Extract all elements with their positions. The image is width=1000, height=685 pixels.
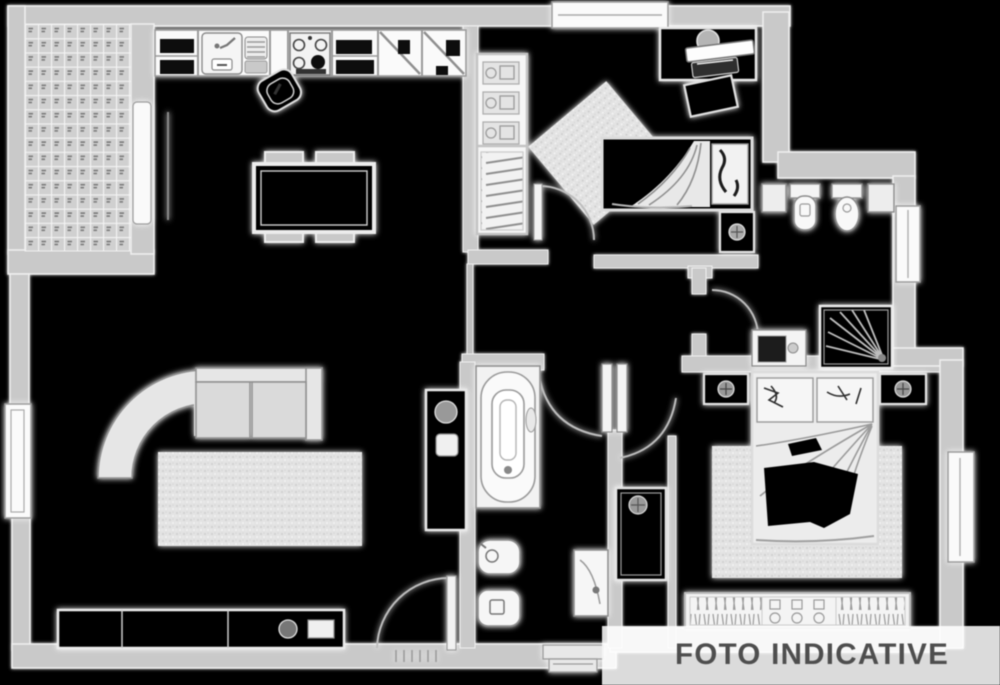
svg-text:FOTO INDICATIVE: FOTO INDICATIVE	[675, 638, 949, 671]
